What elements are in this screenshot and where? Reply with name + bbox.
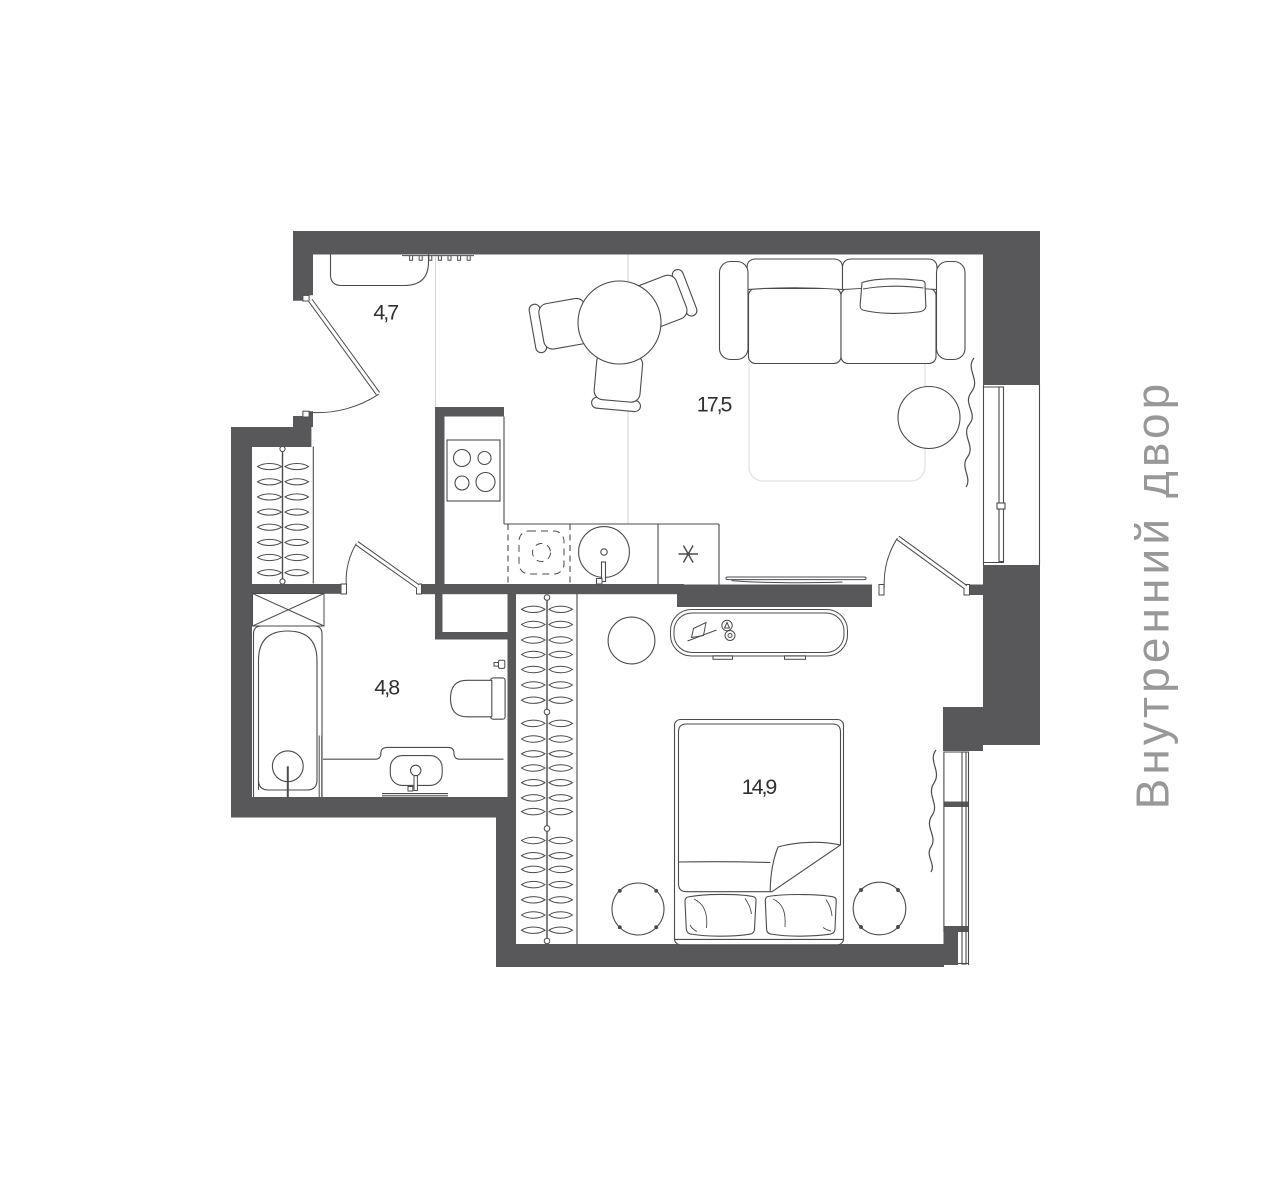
svg-text:14,9: 14,9 bbox=[742, 775, 777, 799]
svg-text:4,8: 4,8 bbox=[374, 676, 399, 700]
svg-text:Внутренний двор: Внутренний двор bbox=[1127, 380, 1179, 810]
svg-text:4,7: 4,7 bbox=[373, 301, 398, 325]
svg-text:17,5: 17,5 bbox=[697, 393, 732, 417]
